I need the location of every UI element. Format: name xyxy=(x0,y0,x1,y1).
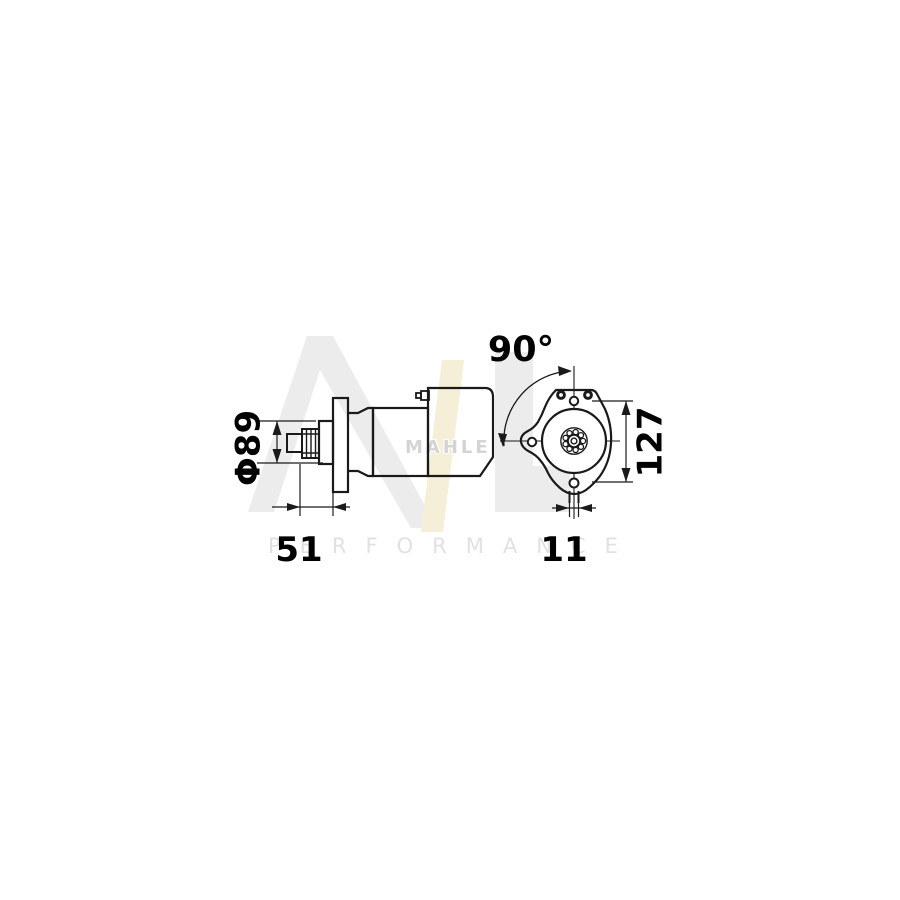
motor-yoke xyxy=(373,408,428,476)
solenoid-block xyxy=(428,388,493,476)
pilot-cylinder xyxy=(319,421,333,464)
pinion-gear xyxy=(302,429,319,458)
bolt-hole-top xyxy=(570,397,578,405)
product-diagram: MAHLE PERFORMANCE xyxy=(0,0,900,900)
dim-label-90deg: 90° xyxy=(488,330,554,370)
drive-housing xyxy=(348,408,373,476)
front-body-circle xyxy=(542,409,606,473)
mount-flange-plate xyxy=(333,398,348,492)
bolt-hole-left xyxy=(528,438,536,446)
starter-side-view xyxy=(257,388,493,516)
rivet-hole-right xyxy=(585,392,592,399)
starter-front-view xyxy=(500,366,633,519)
rivet-hole-left xyxy=(558,392,565,399)
dim-label-51: 51 xyxy=(275,530,322,570)
pinion-shaft xyxy=(287,434,302,452)
bolt-hole-bottom xyxy=(570,479,579,488)
technical-drawing: Φ89 51 90° 127 11 xyxy=(0,0,900,900)
dim-label-11: 11 xyxy=(540,530,587,570)
dim-label-phi89: Φ89 xyxy=(229,410,269,486)
dim-label-127: 127 xyxy=(631,407,671,478)
